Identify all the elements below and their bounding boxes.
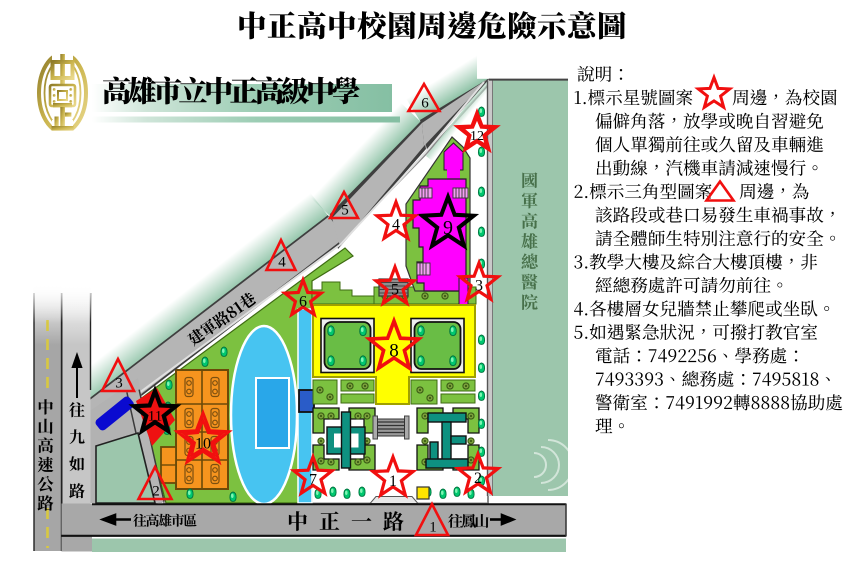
svg-text:2: 2 xyxy=(474,470,482,487)
svg-text:1: 1 xyxy=(429,520,437,536)
svg-text:4: 4 xyxy=(278,255,286,271)
svg-text:11: 11 xyxy=(148,409,162,425)
svg-text:6: 6 xyxy=(421,96,429,112)
svg-text:3: 3 xyxy=(115,376,123,392)
svg-text:2: 2 xyxy=(152,484,160,500)
svg-text:8: 8 xyxy=(389,340,399,361)
svg-text:10: 10 xyxy=(195,436,211,453)
svg-text:12: 12 xyxy=(470,129,484,144)
svg-text:5: 5 xyxy=(341,203,349,219)
svg-text:9: 9 xyxy=(443,217,453,239)
svg-text:7: 7 xyxy=(309,472,317,489)
svg-text:6: 6 xyxy=(299,294,307,311)
svg-text:5: 5 xyxy=(391,282,399,299)
svg-text:3: 3 xyxy=(475,278,483,295)
svg-text:1: 1 xyxy=(389,473,397,490)
svg-text:4: 4 xyxy=(392,217,400,234)
